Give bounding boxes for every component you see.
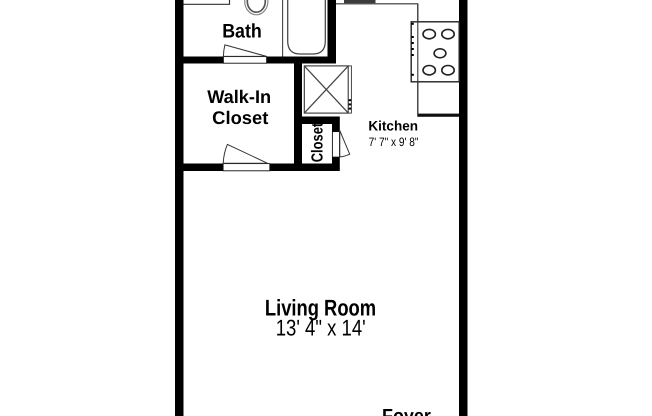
- svg-text:Kitchen: Kitchen: [368, 119, 418, 134]
- svg-text:Closet: Closet: [212, 107, 268, 128]
- svg-text:13' 4" x 14': 13' 4" x 14': [276, 315, 366, 341]
- svg-text:Walk-In: Walk-In: [207, 86, 271, 107]
- svg-text:7' 7" x 9' 8": 7' 7" x 9' 8": [369, 135, 419, 149]
- svg-text:Closet: Closet: [310, 122, 327, 162]
- svg-text:Bath: Bath: [222, 20, 262, 42]
- svg-text:Foyer: Foyer: [382, 405, 431, 416]
